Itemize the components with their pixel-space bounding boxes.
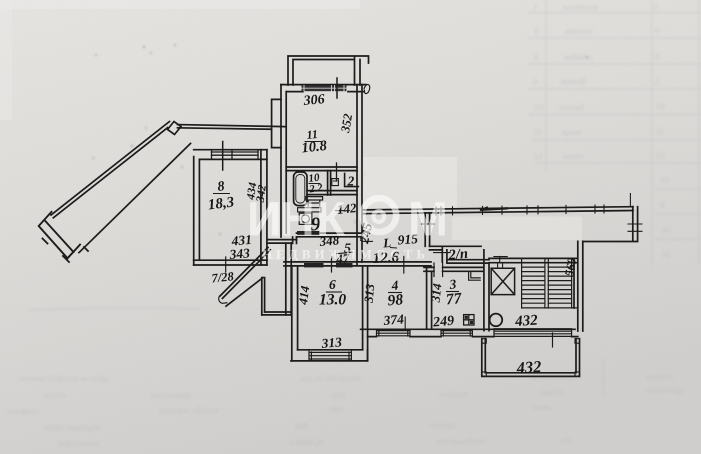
svg-text:тоβм ввшощми: тоβм ввшощми bbox=[44, 422, 100, 432]
svg-text:18,3: 18,3 bbox=[207, 194, 236, 213]
svg-text:13: 13 bbox=[660, 175, 669, 185]
svg-text:И: И bbox=[247, 194, 282, 247]
svg-text:249: 249 bbox=[432, 314, 455, 331]
svg-text:7/28: 7/28 bbox=[211, 269, 235, 285]
svg-text:щоπ: щоπ bbox=[330, 389, 346, 399]
svg-text:отогиж чбшогπ: отогиж чбшогπ bbox=[160, 405, 220, 415]
svg-text:52: 52 bbox=[662, 249, 671, 259]
svg-text:809: 809 bbox=[295, 421, 309, 431]
svg-text:двтα: двтα bbox=[532, 402, 551, 412]
svg-text:эонядоаж: эонядоаж bbox=[562, 2, 599, 12]
svg-text:вицвеж: вицвеж bbox=[646, 371, 673, 381]
svg-text:ваннаβ: ваннаβ bbox=[561, 76, 587, 86]
svg-text:2: 2 bbox=[347, 174, 355, 189]
svg-text:откиндιqπ: откиндιqπ bbox=[646, 385, 685, 395]
svg-text:77: 77 bbox=[445, 290, 463, 309]
svg-text:НЕДВИЖИМОСТЬ: НЕДВИЖИМОСТЬ bbox=[262, 247, 429, 261]
svg-text:нохгаδ: нохгаδ bbox=[560, 102, 585, 112]
svg-text:900: 900 bbox=[330, 404, 344, 414]
svg-text:314: 314 bbox=[428, 283, 444, 304]
svg-text:11: 11 bbox=[656, 126, 664, 136]
svg-text:заιижнвіdц: заιижнвіdц bbox=[149, 390, 191, 400]
svg-text:апофыιο: апофыιο bbox=[8, 406, 39, 416]
svg-text:98: 98 bbox=[387, 291, 404, 309]
svg-text:тфел велао: тфел велао bbox=[58, 438, 99, 448]
svg-text:идπ внагθπιαπ: идπ внагθπιαπ bbox=[436, 436, 487, 446]
svg-text:1: 1 bbox=[533, 2, 537, 12]
svg-text:432: 432 bbox=[514, 312, 539, 330]
svg-text:432: 432 bbox=[515, 357, 542, 378]
svg-text:водидох: водидох bbox=[564, 52, 593, 62]
svg-text:6: 6 bbox=[329, 277, 336, 292]
svg-text:монвте дофогαн вн тіqφ: монвте дофогαн вн тіqφ bbox=[17, 373, 108, 383]
svg-text:ε-θ80θ-γπ: ε-θ80θ-γπ bbox=[290, 437, 324, 447]
svg-text:374: 374 bbox=[382, 311, 405, 328]
svg-text:1: 1 bbox=[654, 1, 658, 11]
svg-text:12: 12 bbox=[656, 150, 665, 160]
svg-text:306: 306 bbox=[302, 92, 325, 109]
svg-text:313: 313 bbox=[320, 334, 343, 351]
svg-text:10.8: 10.8 bbox=[301, 138, 329, 157]
svg-text:огоππ: огоππ bbox=[563, 151, 584, 161]
svg-text:13.0: 13.0 bbox=[319, 292, 346, 309]
svg-text:вннгαж: вннгαж bbox=[565, 26, 593, 36]
svg-text:идπ: идπ bbox=[560, 435, 574, 445]
svg-text:50: 50 bbox=[662, 225, 671, 235]
svg-text:вігдππ: вігдππ bbox=[44, 390, 67, 400]
svg-text:343: 343 bbox=[228, 245, 251, 262]
svg-text:414: 414 bbox=[296, 285, 312, 306]
svg-text:10: 10 bbox=[656, 101, 665, 111]
svg-text:пэтвqд: пэтвqд bbox=[430, 420, 457, 430]
svg-text:313: 313 bbox=[361, 283, 377, 304]
svg-text:2/п: 2/п bbox=[447, 246, 469, 264]
svg-text:10: 10 bbox=[534, 102, 543, 112]
svg-text:М: М bbox=[408, 194, 448, 247]
svg-text:инатоп: инатоп bbox=[440, 389, 467, 399]
svg-text:мзя вδ 909 янοππ: мзя вδ 909 янοππ bbox=[299, 373, 361, 383]
svg-text:кγхня: кγхня bbox=[562, 127, 581, 137]
svg-text:11: 11 bbox=[534, 127, 542, 137]
svg-text:чпвдок: чпвдок bbox=[540, 387, 565, 397]
svg-text:12: 12 bbox=[534, 151, 543, 161]
svg-text:К: К bbox=[316, 194, 346, 247]
svg-text:Н: Н bbox=[280, 194, 315, 247]
